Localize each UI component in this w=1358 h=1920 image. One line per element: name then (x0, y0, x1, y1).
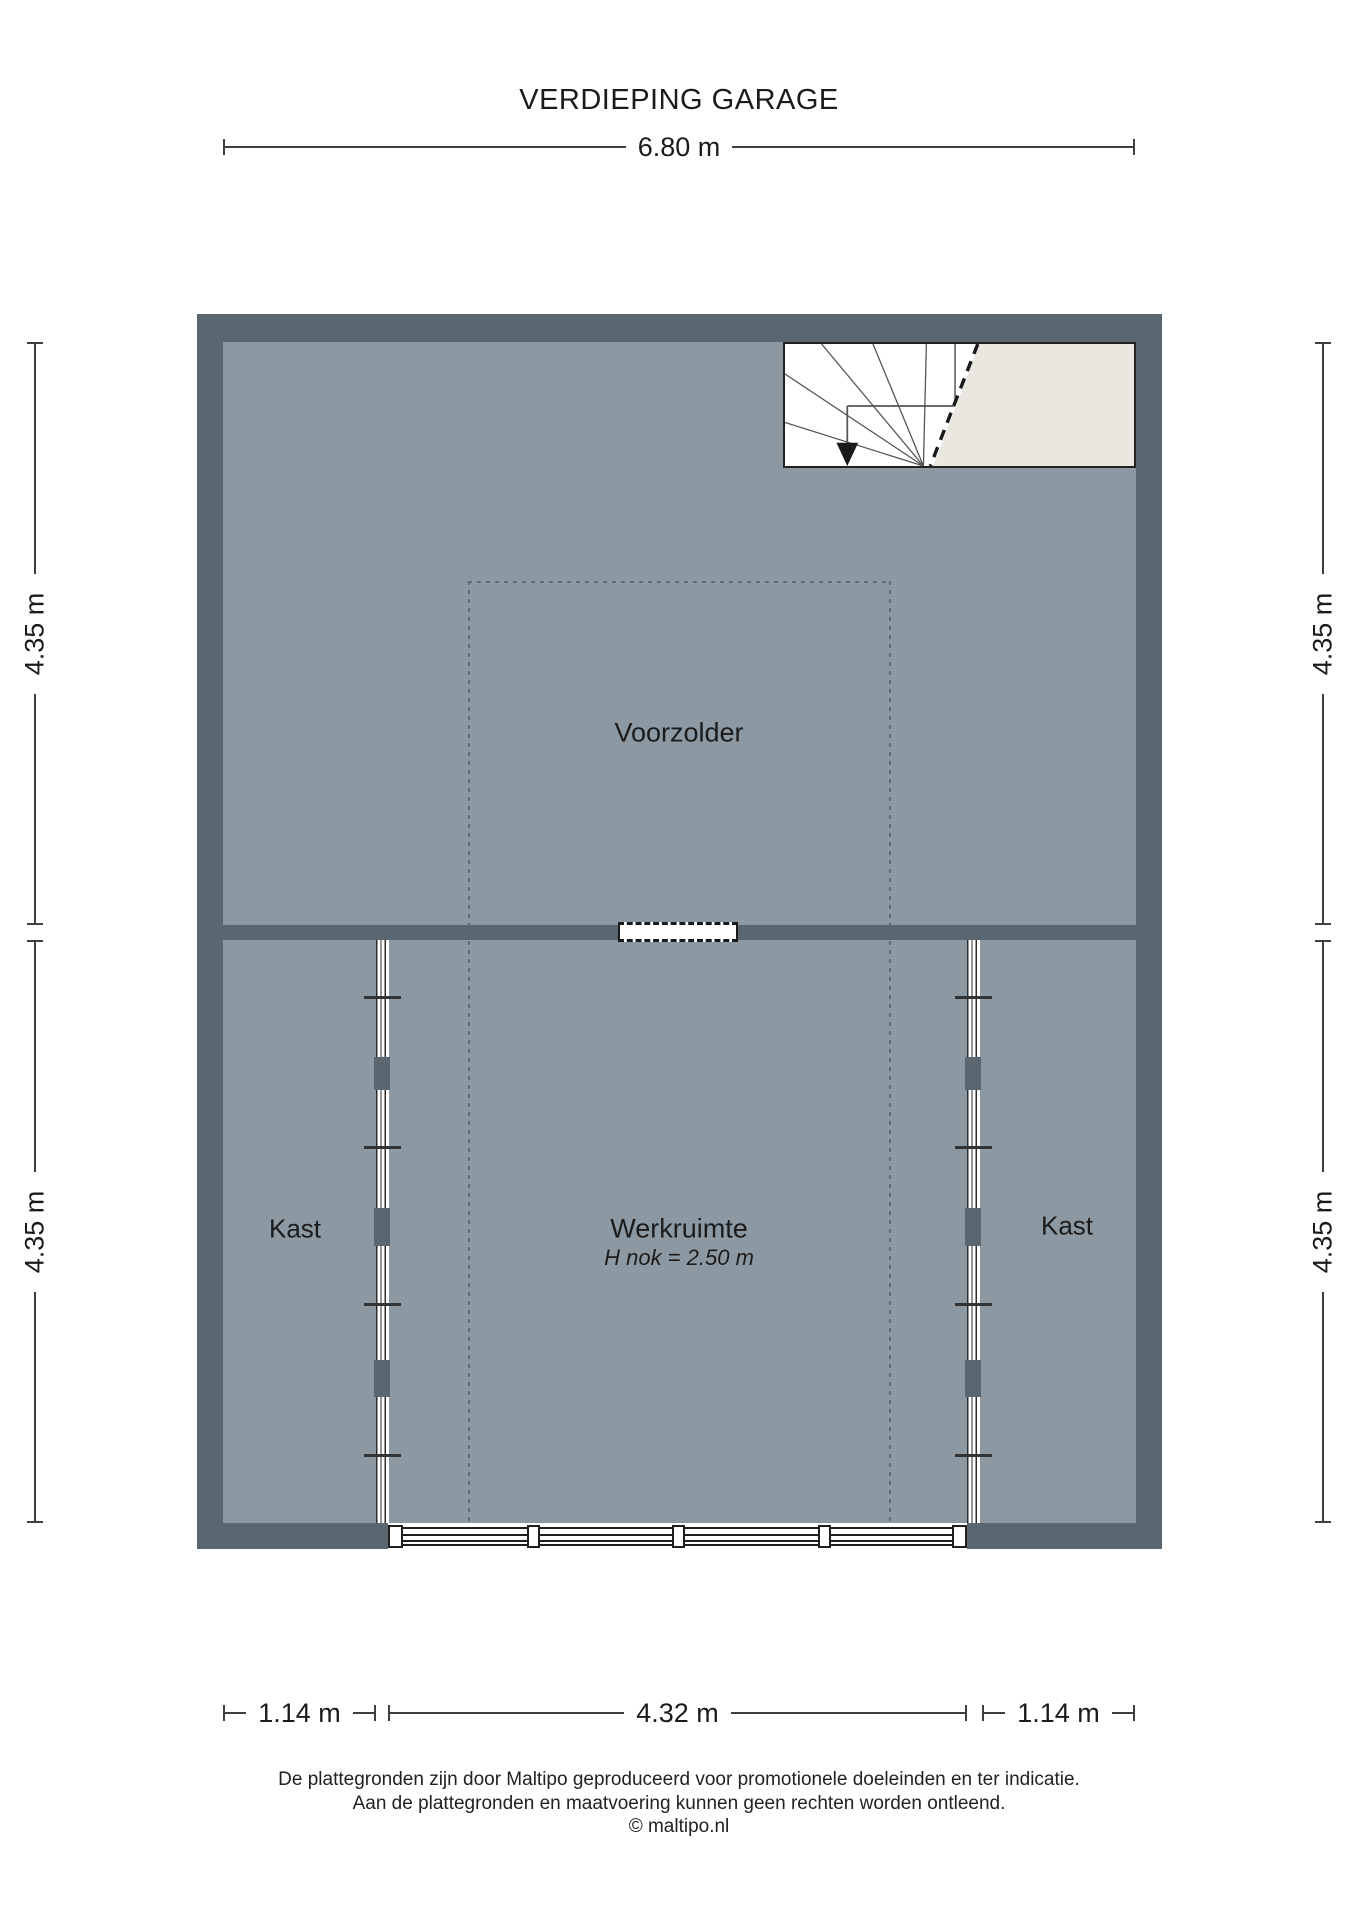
stairs-symbol (785, 344, 1134, 466)
dimension-right-lower: 4.35 m (1310, 940, 1336, 1523)
dimension-line (34, 344, 36, 574)
room-label-kast-left: Kast (269, 1214, 321, 1245)
stair-direction-arrow-icon (836, 443, 858, 466)
dimension-line (34, 1292, 36, 1522)
dimension-line (225, 146, 626, 148)
dimension-line (1322, 942, 1324, 1172)
dimension-line (225, 1712, 246, 1714)
dimension-line (732, 146, 1133, 148)
dimension-bottom-middle: 4.32 m (388, 1700, 967, 1726)
partition-right-tick (955, 1146, 992, 1149)
partition-right-tick (955, 1454, 992, 1457)
page-title: VERDIEPING GARAGE (0, 84, 1358, 117)
dimension-label-right-upper: 4.35 m (1310, 574, 1336, 694)
partition-left-tick (364, 996, 401, 999)
roof-guide-line-left (468, 581, 470, 1523)
dimension-line (390, 1712, 624, 1714)
window-mullion (672, 1525, 685, 1548)
window-mullion (527, 1525, 540, 1548)
roof-guide-line-top (468, 581, 890, 583)
partition-left-tick (364, 1146, 401, 1149)
partition-left-post (374, 1208, 390, 1246)
dimension-line (984, 1712, 1005, 1714)
roof-guide-line-right (889, 581, 891, 1523)
window-mullion (818, 1525, 831, 1548)
dimension-bottom-right: 1.14 m (982, 1700, 1135, 1726)
room-label-werkruimte-height: H nok = 2.50 m (604, 1245, 754, 1271)
dimension-line (353, 1712, 374, 1714)
window-mullion (952, 1525, 967, 1548)
partition-right-post (965, 1057, 981, 1090)
floor-plan-page: VERDIEPING GARAGE 6.80 m 4.35 m 4.35 m 4… (0, 0, 1358, 1920)
dimension-line (1322, 1292, 1324, 1522)
dimension-line (1112, 1712, 1133, 1714)
dimension-label-right-lower: 4.35 m (1310, 1172, 1336, 1292)
dimension-tick (27, 923, 43, 925)
disclaimer-line-3: © maltipo.nl (0, 1815, 1358, 1839)
dimension-label-top: 6.80 m (626, 134, 733, 160)
dimension-tick (965, 1705, 967, 1721)
partition-left-tick (364, 1303, 401, 1306)
staircase (783, 342, 1136, 468)
partition-right-post (965, 1360, 981, 1397)
dimension-bottom-left: 1.14 m (223, 1700, 376, 1726)
disclaimer-line-1: De plattegronden zijn door Maltipo gepro… (0, 1768, 1358, 1792)
dimension-label-bottom-right: 1.14 m (1005, 1700, 1112, 1726)
dimension-line (1322, 344, 1324, 574)
dimension-label-bottom-middle: 4.32 m (624, 1700, 731, 1726)
partition-left-tick (364, 1454, 401, 1457)
room-label-werkruimte: Werkruimte (610, 1214, 748, 1245)
dimension-left-upper: 4.35 m (22, 342, 48, 925)
disclaimer: De plattegronden zijn door Maltipo gepro… (0, 1768, 1358, 1839)
dimension-line (34, 942, 36, 1172)
room-label-kast-right: Kast (1041, 1211, 1093, 1242)
dimension-tick (374, 1705, 376, 1721)
dimension-tick (1133, 1705, 1135, 1721)
partition-right-post (965, 1208, 981, 1246)
disclaimer-line-2: Aan de plattegronden en maatvoering kunn… (0, 1792, 1358, 1816)
dimension-line (731, 1712, 965, 1714)
window-mullion (388, 1525, 403, 1548)
middle-wall-opening (618, 922, 738, 942)
dimension-right-upper: 4.35 m (1310, 342, 1336, 925)
dimension-label-bottom-left: 1.14 m (246, 1700, 353, 1726)
dimension-tick (1315, 923, 1331, 925)
dimension-tick (1133, 139, 1135, 155)
partition-right-tick (955, 1303, 992, 1306)
dimension-line (34, 694, 36, 924)
dimension-line (1322, 694, 1324, 924)
dimension-tick (27, 1521, 43, 1523)
dimension-left-lower: 4.35 m (22, 940, 48, 1523)
dimension-label-left-lower: 4.35 m (22, 1172, 48, 1292)
dimension-label-left-upper: 4.35 m (22, 574, 48, 694)
room-label-voorzolder: Voorzolder (614, 718, 743, 749)
dimension-top: 6.80 m (223, 134, 1135, 160)
partition-left-post (374, 1360, 390, 1397)
partition-left-post (374, 1057, 390, 1090)
dimension-tick (1315, 1521, 1331, 1523)
partition-right-tick (955, 996, 992, 999)
